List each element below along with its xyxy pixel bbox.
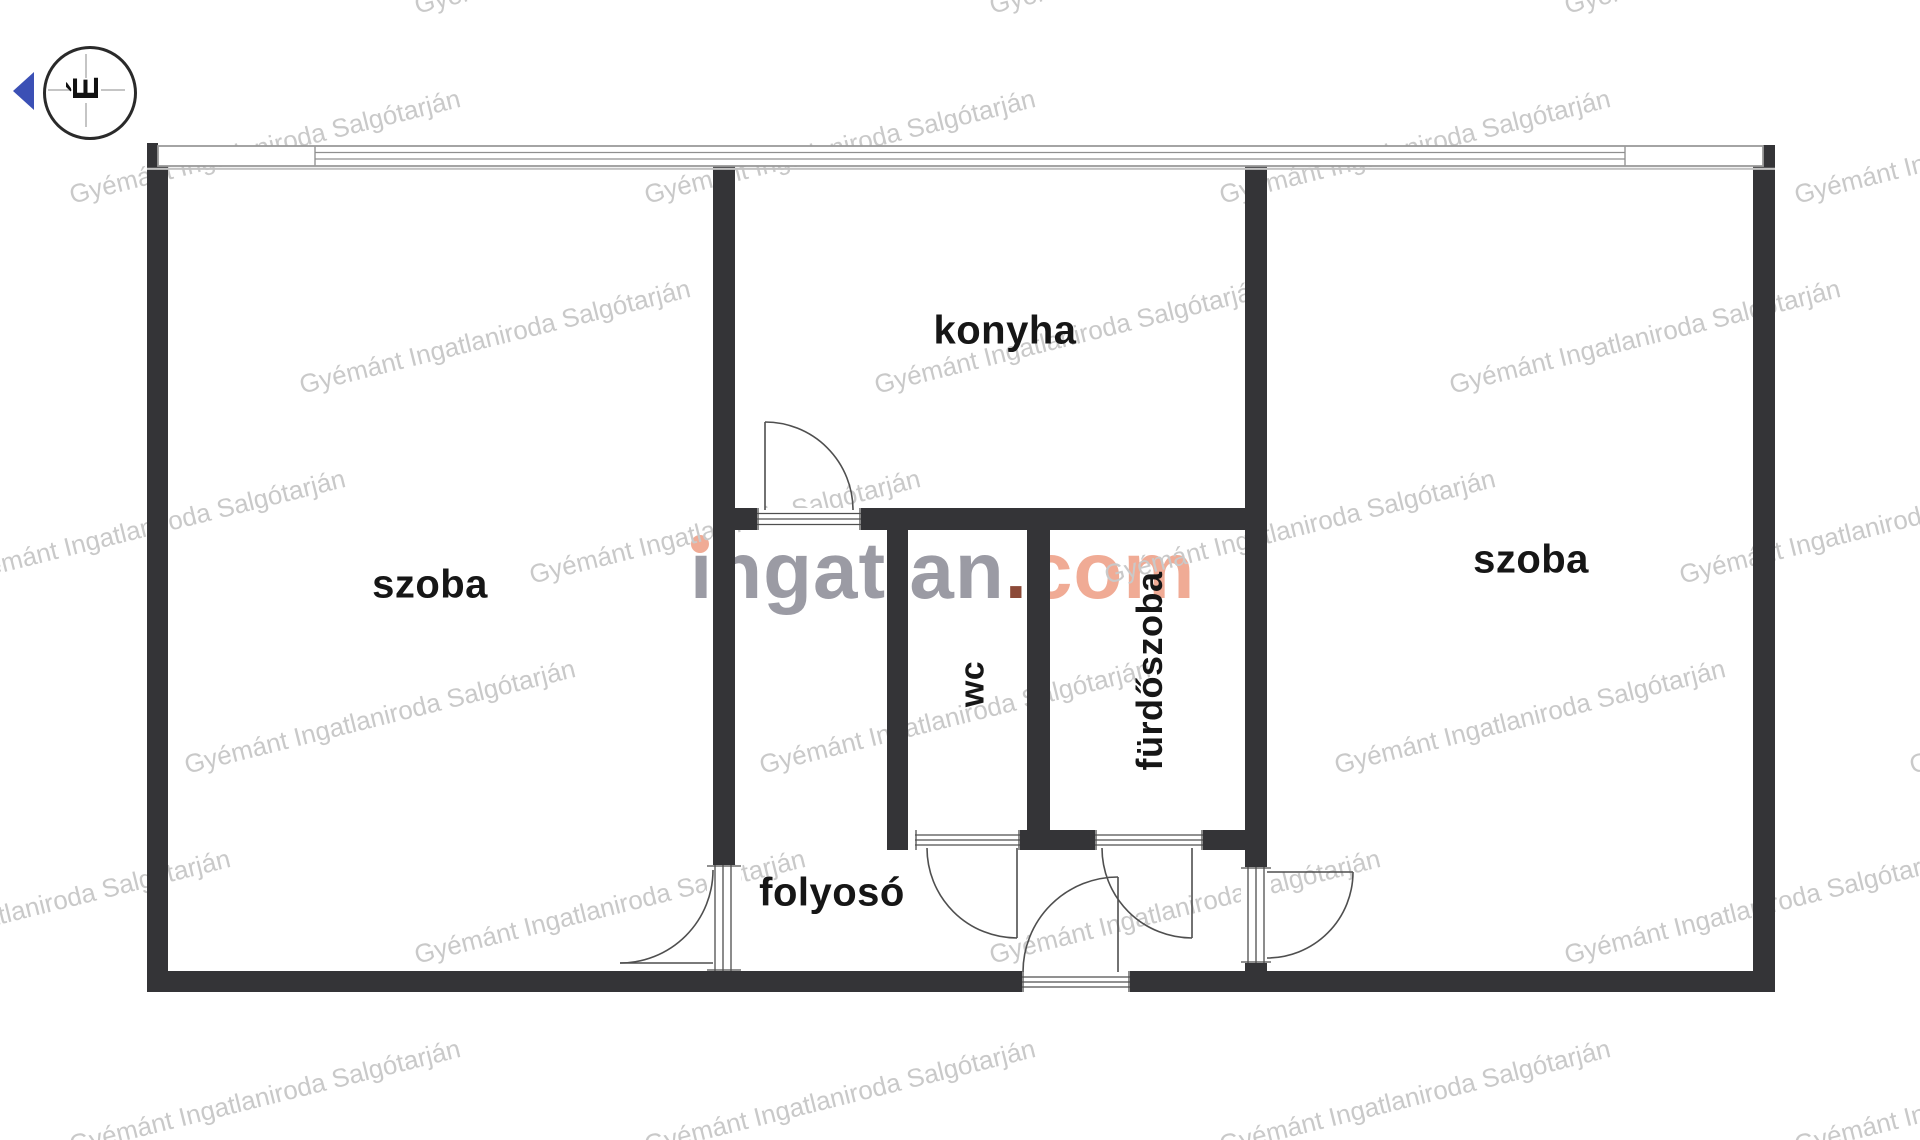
room-label-furdoszoba: fürdőszoba: [1129, 572, 1171, 771]
entrance-door-arc: [1023, 877, 1118, 972]
window-band-frame: [158, 146, 1763, 166]
bathroom-door-arc: [1102, 848, 1192, 938]
compass-north-label: É: [65, 76, 107, 100]
wall-leftroom-hall: [713, 166, 735, 865]
room-label-folyoso: folyosó: [759, 871, 905, 916]
bathroom-door-threshold: [1095, 830, 1203, 850]
entrance-door-threshold: [1022, 971, 1130, 992]
room-label-konyha: konyha: [933, 309, 1076, 354]
bottom-wall-left: [147, 971, 1022, 992]
wall-rightroom: [1245, 166, 1267, 867]
kitchen-door-threshold: [757, 508, 861, 530]
kitchen-door-arc: [765, 422, 853, 510]
compass-tick-top: [85, 54, 87, 78]
wall-rightroom-bottom: [1245, 958, 1267, 992]
wc-left-wall: [887, 530, 908, 850]
leftroom-door-arc: [620, 870, 713, 963]
floorplan-drawing: [0, 0, 1920, 1140]
wc-bathroom-wall: [1027, 530, 1050, 830]
bathroom-bottom-right-stub: [1203, 830, 1245, 850]
left-wall: [147, 166, 168, 992]
wc-door-arc: [927, 848, 1017, 938]
rightroom-door-threshold: [1241, 867, 1271, 963]
right-wall: [1753, 166, 1775, 992]
wc-door-threshold: [915, 830, 1020, 850]
wc-bath-bottom-block: [1020, 830, 1095, 850]
room-label-right-szoba: szoba: [1473, 538, 1589, 583]
floorplan-canvas: ingatlan.com Gyémánt Ingatlaniroda Salgó…: [0, 0, 1920, 1140]
rightroom-door-arc: [1267, 872, 1353, 958]
top-window-band: [147, 146, 1775, 169]
thresholds: [707, 508, 1271, 992]
bottom-wall-right: [1130, 971, 1775, 992]
compass-tick-bottom: [85, 103, 87, 127]
kitchen-door-jamb: [735, 508, 759, 530]
north-arrow-icon: [13, 72, 34, 110]
compass: É: [0, 0, 160, 160]
room-label-wc: wc: [954, 661, 993, 707]
kitchen-bottom-wall: [859, 508, 1245, 530]
room-label-left-szoba: szoba: [372, 563, 488, 608]
right-wall-top: [1763, 145, 1775, 167]
